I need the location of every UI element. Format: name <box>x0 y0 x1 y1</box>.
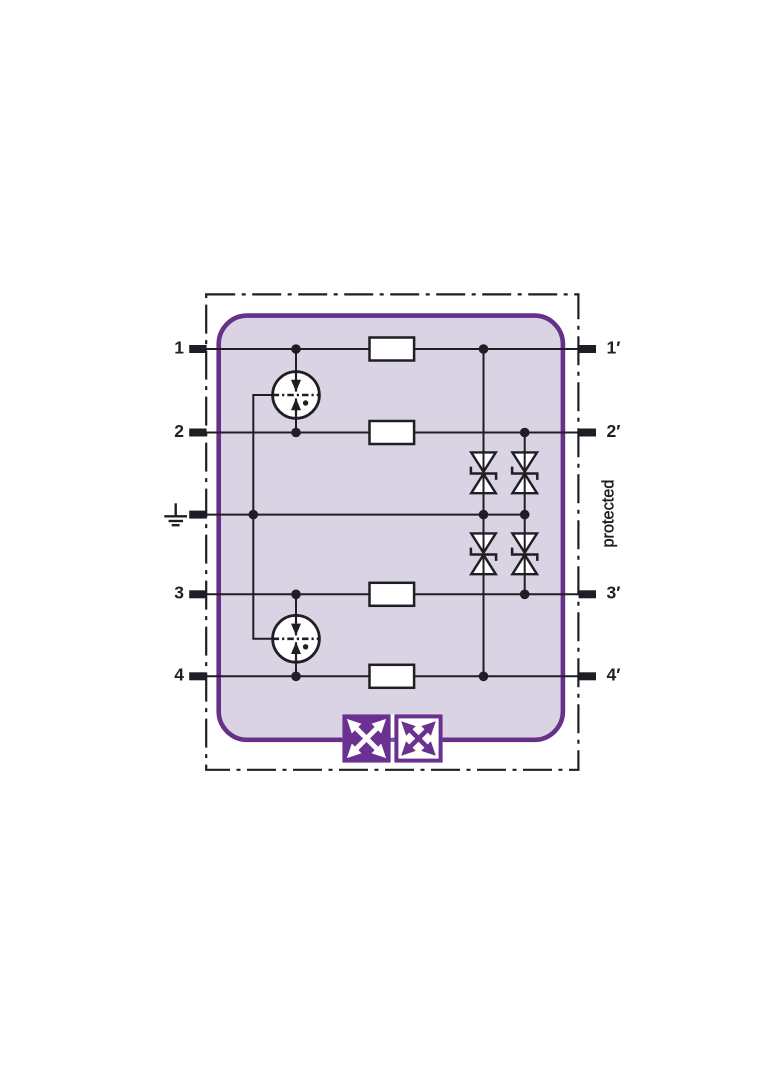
svg-text:2′: 2′ <box>607 421 621 441</box>
svg-text:4′: 4′ <box>607 665 621 685</box>
svg-text:2: 2 <box>174 421 184 441</box>
svg-text:3: 3 <box>174 583 184 603</box>
svg-text:1′: 1′ <box>607 337 621 357</box>
svg-text:4: 4 <box>174 665 184 685</box>
svg-text:protected: protected <box>600 480 618 548</box>
svg-text:3′: 3′ <box>607 583 621 603</box>
svg-text:1: 1 <box>174 337 184 357</box>
